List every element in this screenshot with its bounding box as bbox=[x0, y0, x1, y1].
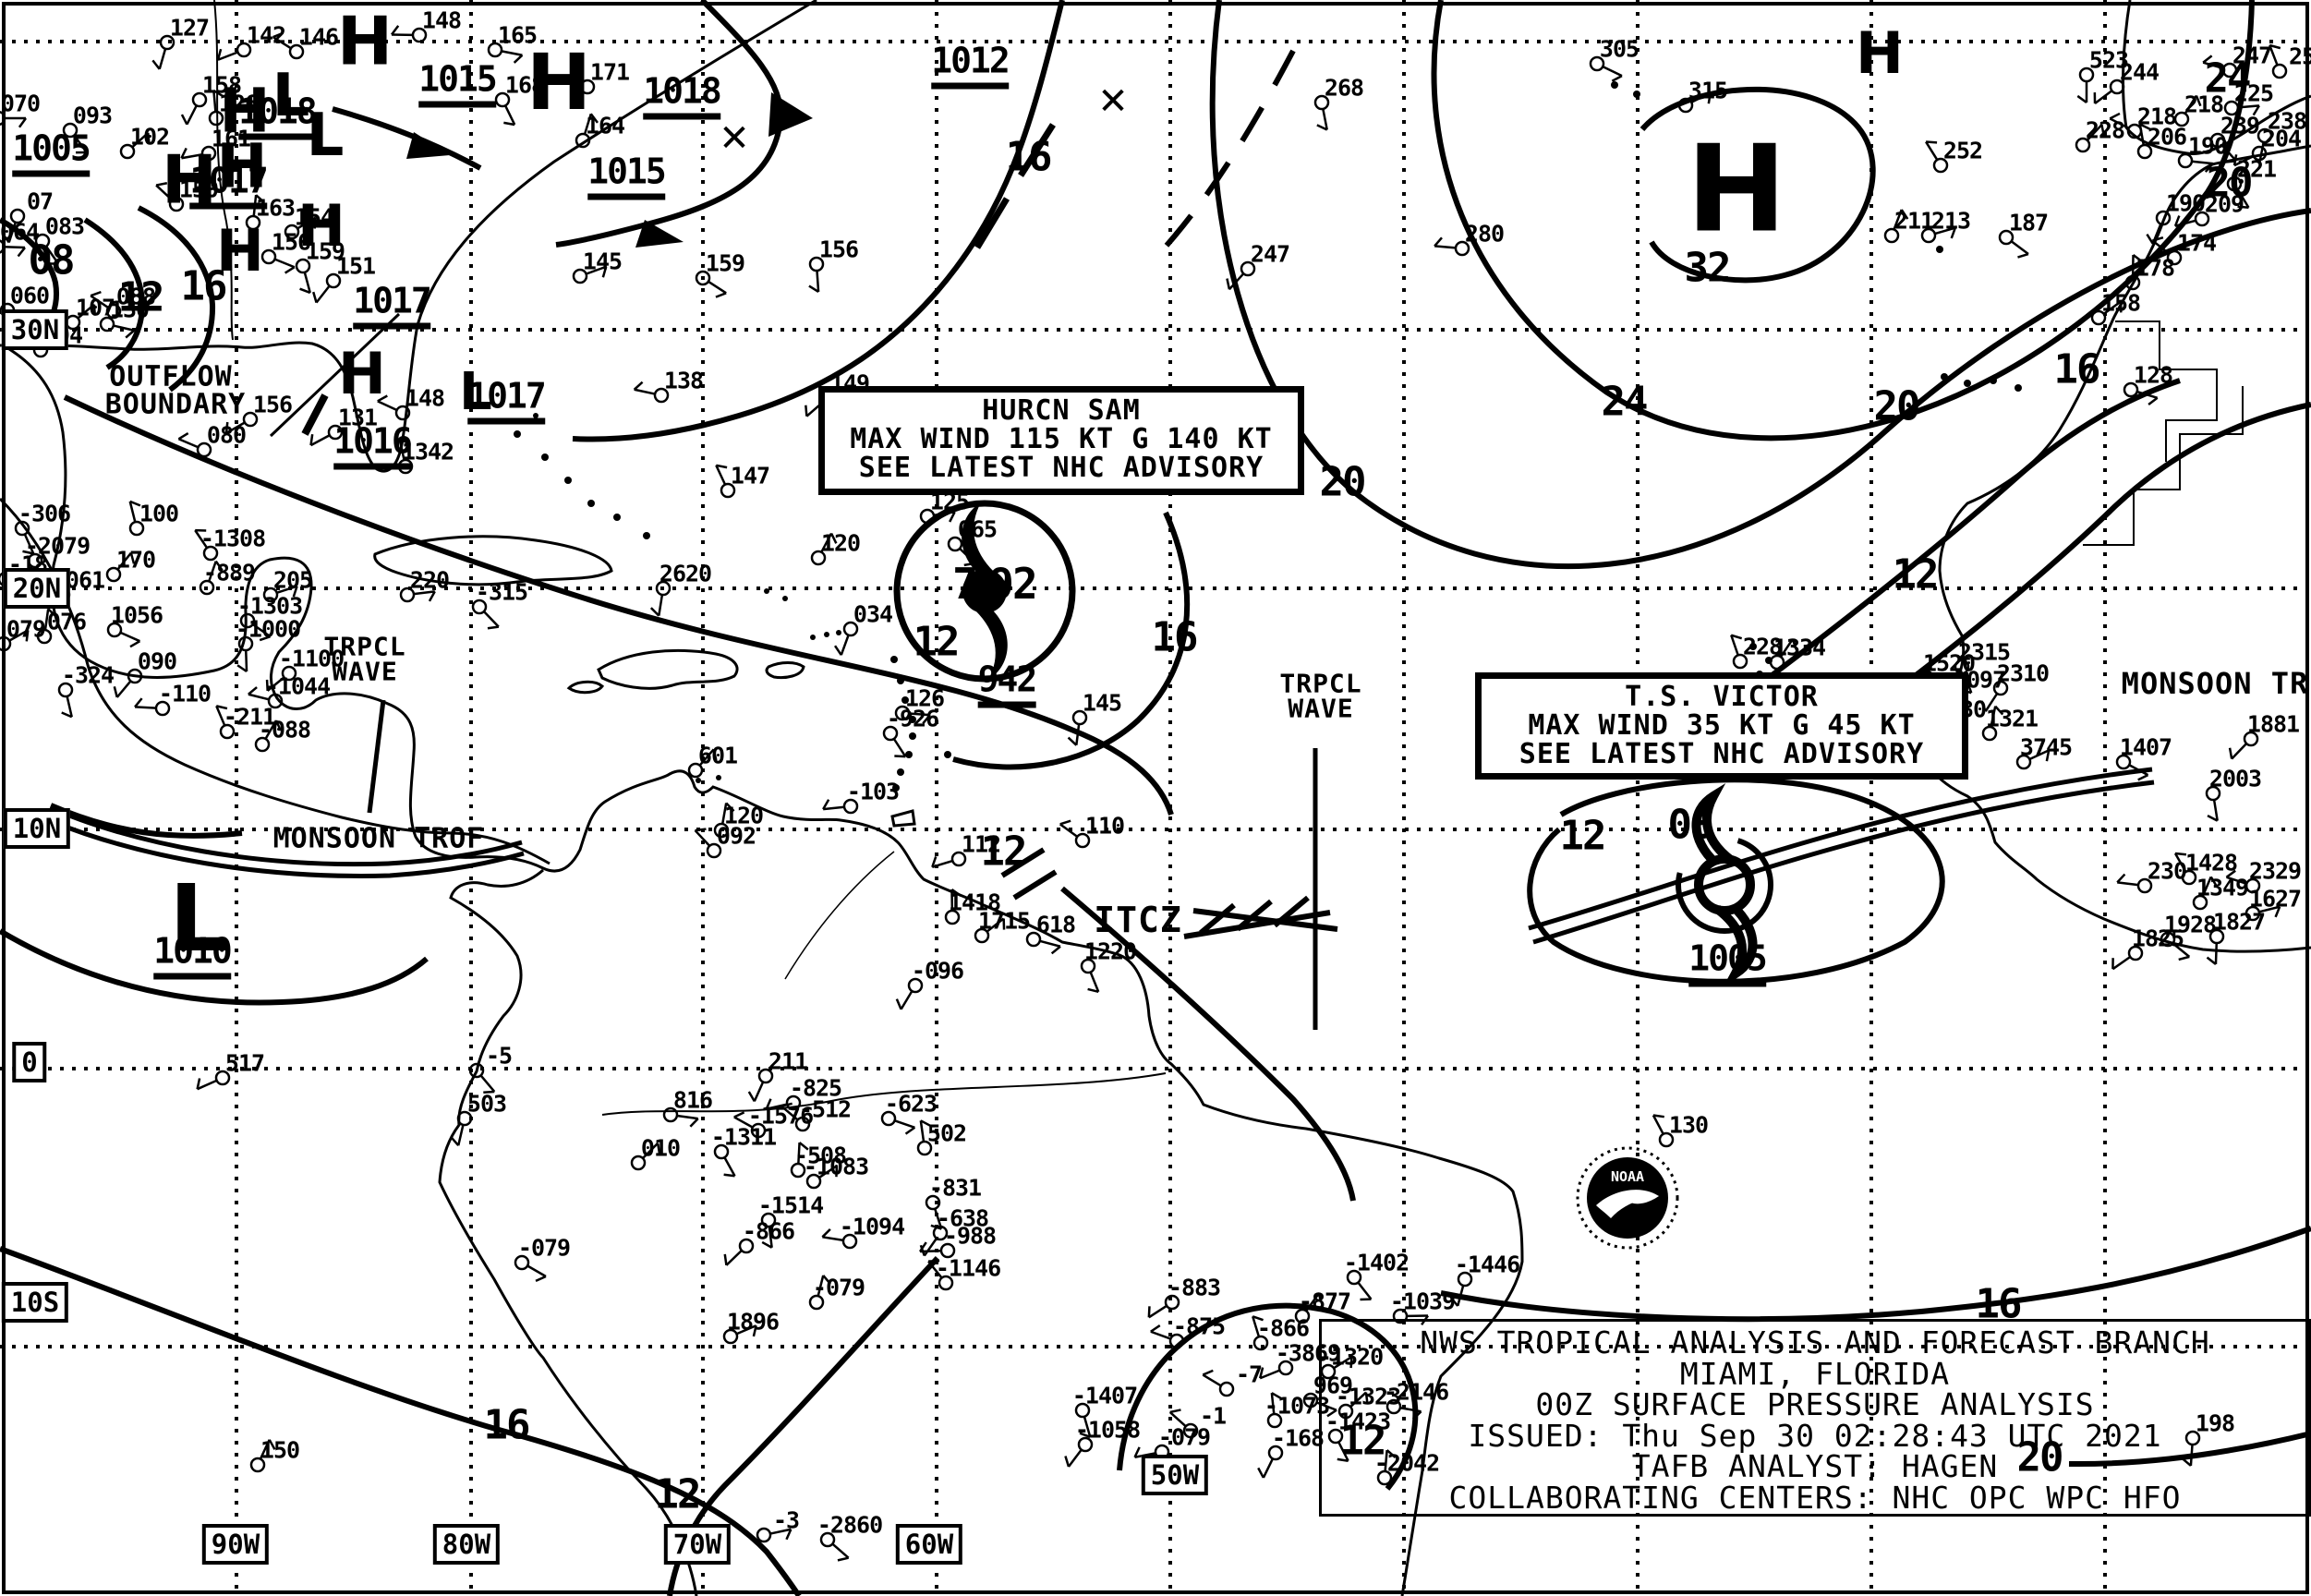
station-value: -831 bbox=[929, 1175, 981, 1202]
station-value: -512 bbox=[799, 1096, 851, 1123]
low-center-symbol: L bbox=[459, 369, 492, 416]
station-value: 083 bbox=[45, 213, 84, 240]
longitude-label: 50W bbox=[1142, 1455, 1208, 1495]
isobar-label: 20 bbox=[1320, 459, 1365, 506]
station-value: 150 bbox=[260, 1437, 299, 1464]
station-value: 061 bbox=[66, 567, 104, 594]
latitude-label: 10N bbox=[4, 808, 70, 849]
station-value: -1 bbox=[1200, 1403, 1226, 1430]
station-value: 148 bbox=[405, 385, 444, 412]
sam-data-right: 92 bbox=[988, 559, 1035, 609]
latitude-label: 0 bbox=[12, 1042, 46, 1082]
station-value: -1402 bbox=[1344, 1250, 1409, 1276]
station-value: 252 bbox=[1943, 138, 1982, 164]
station-value: 178 bbox=[2136, 255, 2174, 282]
pressure-center-value: 1016 bbox=[333, 421, 411, 470]
station-value: 247 bbox=[1251, 241, 1289, 268]
station-value: 107 bbox=[76, 295, 115, 321]
pressure-center-value: 1015 bbox=[418, 59, 496, 108]
isobar-label: 12 bbox=[981, 828, 1026, 876]
feature-label: WAVE bbox=[332, 657, 397, 687]
station-value: -875 bbox=[1173, 1313, 1225, 1340]
station-value: 142 bbox=[247, 22, 285, 49]
station-value: 145 bbox=[1083, 690, 1121, 717]
station-value: 280 bbox=[1465, 221, 1504, 248]
station-value: 060 bbox=[10, 283, 49, 309]
station-value: 170 bbox=[116, 547, 155, 574]
longitude-label: 90W bbox=[202, 1524, 269, 1565]
trough-cross-symbol: ✕ bbox=[719, 122, 750, 155]
pressure-center-value: 1015 bbox=[587, 151, 665, 200]
station-value: 079 bbox=[6, 616, 45, 643]
station-value: -306 bbox=[18, 501, 70, 527]
isobar-label: 20 bbox=[1874, 383, 1919, 430]
tropical-wave-axes bbox=[369, 700, 1315, 1030]
station-value: -103 bbox=[847, 779, 899, 805]
station-value: -1094 bbox=[840, 1214, 904, 1240]
station-value: -315 bbox=[476, 579, 527, 606]
station-value: -1058 bbox=[1075, 1417, 1140, 1444]
high-center-symbol: H bbox=[216, 139, 267, 193]
station-value: -088 bbox=[259, 717, 310, 744]
station-value: -7 bbox=[1236, 1361, 1262, 1388]
station-value: 2003 bbox=[2209, 766, 2261, 792]
station-value: -1146 bbox=[936, 1255, 1000, 1282]
surface-analysis-chart: NOAA 07009312714214612610216516815816115… bbox=[0, 0, 2311, 1596]
station-value: 228 bbox=[2086, 117, 2124, 144]
station-value: -324 bbox=[62, 662, 114, 689]
station-value: 110 bbox=[1085, 813, 1124, 840]
isobar-label: 08 bbox=[29, 237, 74, 284]
pressure-center-value: 1005 bbox=[12, 128, 90, 177]
station-value: 148 bbox=[422, 7, 461, 34]
station-value: -883 bbox=[1168, 1275, 1220, 1301]
isobar-label: 20 bbox=[2207, 160, 2252, 207]
station-value: -1044 bbox=[265, 673, 330, 700]
station-value: 213 bbox=[1931, 208, 1970, 235]
isobar-label: 12 bbox=[1560, 813, 1605, 860]
station-value: 120 bbox=[724, 803, 763, 829]
station-value: 156 bbox=[253, 392, 292, 418]
pressure-center-value: 1017 bbox=[353, 281, 430, 330]
feature-label: ITCZ bbox=[1094, 900, 1182, 940]
station-value: 1056 bbox=[111, 602, 163, 629]
latitude-label: 10S bbox=[2, 1282, 68, 1323]
station-value: 076 bbox=[47, 609, 86, 635]
isobar-label: 24 bbox=[2205, 55, 2250, 103]
low-center-symbol: L bbox=[307, 110, 345, 163]
station-value: -1000 bbox=[236, 616, 300, 643]
station-value: 2329 bbox=[2249, 858, 2301, 885]
station-value: 147 bbox=[731, 463, 769, 490]
pressure-center-value: 942 bbox=[978, 659, 1036, 708]
station-value: 1825 bbox=[2132, 925, 2184, 952]
station-value: 1334 bbox=[1773, 635, 1825, 661]
station-value: -1083 bbox=[804, 1154, 868, 1180]
feature-label: BOUNDARY bbox=[105, 389, 247, 421]
station-value: 128 bbox=[2134, 362, 2172, 389]
station-value: 187 bbox=[2009, 210, 2048, 236]
station-value: -926 bbox=[887, 706, 938, 732]
station-value: 3745 bbox=[2020, 734, 2072, 761]
station-value: 503 bbox=[467, 1091, 506, 1118]
station-value: 1407 bbox=[2120, 734, 2172, 761]
pressure-center-value: 1018 bbox=[643, 71, 720, 120]
isobar-label: 16 bbox=[484, 1402, 529, 1449]
station-value: 158 bbox=[2101, 290, 2140, 317]
longitude-label: 60W bbox=[896, 1524, 962, 1565]
station-value: 230 bbox=[2148, 858, 2186, 885]
high-center-symbol: H bbox=[526, 48, 591, 118]
station-value: -866 bbox=[743, 1218, 794, 1245]
station-value: 268 bbox=[1325, 75, 1363, 102]
station-value: 093 bbox=[73, 103, 112, 129]
station-value: -110 bbox=[159, 681, 211, 707]
station-value: 156 bbox=[819, 236, 858, 263]
high-center-symbol: H bbox=[338, 348, 386, 400]
feature-label: WAVE bbox=[1288, 694, 1353, 724]
high-center-symbol: H bbox=[216, 225, 264, 277]
high-center-symbol: H bbox=[297, 200, 345, 252]
station-value: 206 bbox=[2148, 124, 2186, 151]
station-value: 816 bbox=[673, 1087, 712, 1114]
station-value: -877 bbox=[1299, 1288, 1350, 1315]
station-value: -623 bbox=[885, 1091, 937, 1118]
station-value: 1715 bbox=[978, 908, 1030, 935]
station-value: -079 bbox=[518, 1235, 570, 1262]
station-value: -168 bbox=[1272, 1425, 1324, 1452]
sam-data-left: 7 bbox=[952, 559, 976, 609]
station-value: 1321 bbox=[1986, 706, 2038, 732]
station-value: 1428 bbox=[2185, 850, 2237, 877]
low-center-symbol: L bbox=[169, 877, 228, 961]
isobar-label: 08 bbox=[1668, 802, 1713, 849]
station-value: 205 bbox=[273, 567, 312, 594]
longitude-label: 70W bbox=[664, 1524, 731, 1565]
station-value: 618 bbox=[1036, 912, 1075, 938]
high-center-symbol: H bbox=[1687, 136, 1787, 244]
pressure-center-value: 1005 bbox=[1688, 938, 1766, 987]
station-value: 190 bbox=[2166, 190, 2205, 217]
low-center-symbol: L bbox=[272, 70, 310, 124]
station-value: 204 bbox=[2262, 126, 2301, 152]
station-value: 164 bbox=[586, 113, 624, 139]
high-center-symbol: H bbox=[1856, 28, 1904, 79]
station-value: 090 bbox=[138, 648, 176, 675]
station-value: 502 bbox=[927, 1120, 966, 1147]
trough-cross-symbol: ✕ bbox=[1097, 85, 1129, 118]
station-value: 220 bbox=[410, 567, 449, 594]
isobar-label: 16 bbox=[1152, 614, 1197, 661]
ts-victor-advisory-box: T.S. VICTORMAX WIND 35 KT G 45 KTSEE LAT… bbox=[1475, 672, 1968, 780]
station-value: 1220 bbox=[1084, 938, 1136, 965]
station-value: -1514 bbox=[758, 1192, 823, 1219]
station-value: -1039 bbox=[1390, 1288, 1455, 1315]
longitude-label: 80W bbox=[433, 1524, 500, 1565]
hurricane-sam-advisory-box: HURCN SAMMAX WIND 115 KT G 140 KTSEE LAT… bbox=[818, 386, 1304, 495]
station-value: 100 bbox=[139, 501, 178, 527]
station-value: -988 bbox=[944, 1223, 996, 1250]
station-value: -1407 bbox=[1072, 1383, 1137, 1409]
station-value: -096 bbox=[912, 958, 963, 985]
high-center-symbol: H bbox=[162, 151, 217, 211]
latitude-label: 20N bbox=[4, 568, 70, 609]
isobar-label: 16 bbox=[2054, 346, 2099, 393]
station-value: -079 bbox=[813, 1275, 865, 1301]
station-value: -1446 bbox=[1455, 1251, 1519, 1278]
station-value: 305 bbox=[1600, 36, 1639, 63]
latitude-label: 30N bbox=[2, 309, 68, 350]
station-value: 127 bbox=[170, 15, 209, 42]
isobar-label: 24 bbox=[1602, 379, 1647, 426]
station-value: -5 bbox=[486, 1043, 512, 1070]
station-value: 065 bbox=[958, 516, 997, 543]
pressure-center-value: 1012 bbox=[931, 41, 1009, 90]
station-value: 174 bbox=[2177, 230, 2216, 257]
station-value: 171 bbox=[590, 59, 629, 86]
title-block: NWS TROPICAL ANALYSIS AND FORECAST BRANC… bbox=[1319, 1319, 2311, 1517]
station-value: 07 bbox=[27, 188, 53, 215]
station-value: -2860 bbox=[817, 1512, 882, 1539]
station-value: 244 bbox=[2120, 59, 2159, 86]
station-value: 159 bbox=[706, 250, 744, 277]
station-value: 010 bbox=[641, 1135, 680, 1162]
station-value: 211 bbox=[768, 1048, 807, 1075]
station-value: 080 bbox=[207, 422, 246, 449]
isobar-label: 12 bbox=[1893, 551, 1938, 598]
station-value: 070 bbox=[1, 91, 40, 117]
svg-text:NOAA: NOAA bbox=[1611, 1168, 1644, 1185]
station-value: 2620 bbox=[659, 561, 711, 587]
station-value: -1311 bbox=[711, 1124, 776, 1151]
isobar-label: 12 bbox=[914, 619, 959, 666]
station-value: 1827 bbox=[2213, 909, 2265, 936]
station-value: 315 bbox=[1688, 78, 1727, 104]
station-value: 146 bbox=[299, 24, 338, 51]
station-value: 1881 bbox=[2247, 711, 2299, 738]
station-value: 190 bbox=[2188, 133, 2227, 160]
isobar-label: 12 bbox=[655, 1471, 700, 1518]
station-value: 145 bbox=[583, 248, 622, 275]
feature-label: MONSOON TR bbox=[2122, 666, 2309, 701]
station-value: -889 bbox=[203, 560, 255, 586]
station-value: 211 bbox=[1894, 208, 1933, 235]
station-value: 120 bbox=[821, 530, 860, 557]
station-value: -866 bbox=[1257, 1315, 1309, 1342]
high-center-symbol: H bbox=[337, 12, 393, 72]
isobar-label: 12 bbox=[118, 274, 163, 321]
station-value: 034 bbox=[853, 601, 892, 628]
noaa-logo-icon: NOAA bbox=[1578, 1148, 1677, 1248]
station-value: 138 bbox=[664, 368, 703, 394]
station-value: -3 bbox=[773, 1507, 799, 1534]
station-value: 601 bbox=[698, 743, 737, 769]
station-value: 25 bbox=[2289, 43, 2311, 70]
isobar-label: 16 bbox=[1006, 134, 1051, 181]
station-value: -1308 bbox=[200, 526, 265, 552]
station-value: 130 bbox=[1669, 1112, 1708, 1139]
feature-label: MONSOON TROF bbox=[273, 823, 485, 855]
station-value: 517 bbox=[225, 1050, 264, 1077]
station-value: 1896 bbox=[727, 1309, 779, 1336]
station-value: 1349 bbox=[2196, 875, 2248, 901]
